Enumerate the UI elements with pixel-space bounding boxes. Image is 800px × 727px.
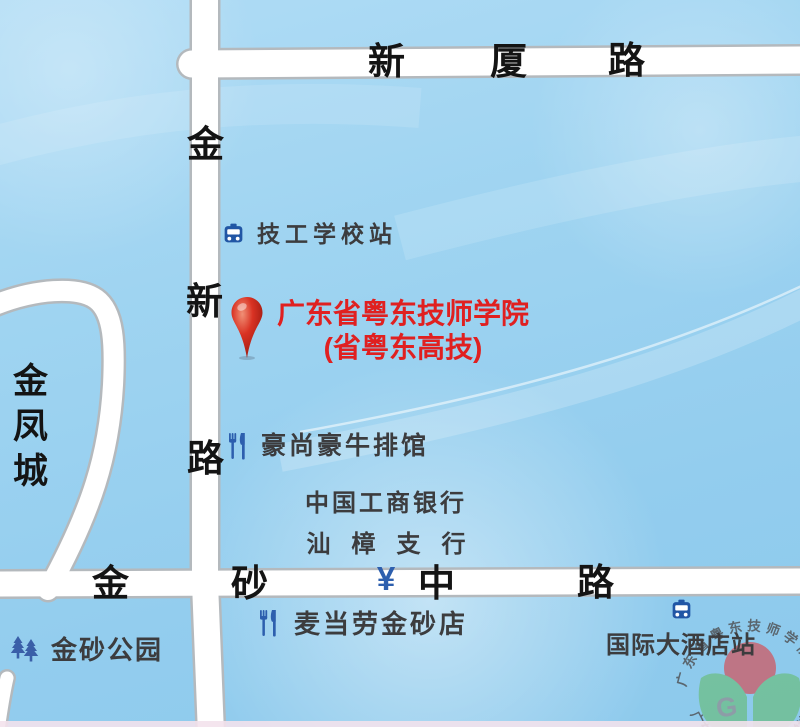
poi-mcdonalds: 麦当劳金砂店: [258, 610, 468, 643]
poi-bus-stop-school: 技工学校站: [221, 222, 397, 252]
restaurant-icon: [258, 610, 280, 643]
map-pin-icon: [232, 297, 263, 360]
poi-bus-stop-hotel: 国际大酒店站: [606, 598, 756, 659]
poi-steak-house: 豪尚豪牛排馆: [227, 433, 429, 466]
restaurant-icon: [227, 433, 249, 466]
poi-bank: 中国工商银行 汕樟支行 ¥: [303, 483, 469, 595]
poi-label: 技工学校站: [257, 222, 397, 247]
road-char: 厦: [490, 43, 527, 80]
yuan-icon: ¥: [303, 562, 469, 595]
area-char: 金: [13, 364, 48, 399]
logo-monogram-g: G: [714, 691, 739, 724]
poi-label: 麦当劳金砂店: [294, 610, 468, 639]
road-char: 新: [368, 43, 405, 80]
area-label-jinfengcheng: 金 凤 城: [13, 364, 48, 489]
poi-label: 金砂公园: [51, 636, 163, 665]
image-edge-strip: [0, 721, 800, 727]
poi-park: 金砂公园: [10, 636, 163, 669]
college-name: 广东省粤东技师学院: [272, 297, 534, 331]
bus-icon: [221, 222, 246, 252]
area-char: 凤: [13, 409, 48, 444]
bank-branch: 汕樟支行: [303, 524, 490, 559]
college-alias: (省粤东高技): [272, 331, 534, 365]
area-char: 城: [13, 454, 48, 489]
poi-label: 豪尚豪牛排馆: [261, 433, 429, 461]
road-char: 路: [577, 564, 614, 601]
road-char: 路: [608, 42, 645, 79]
bank-name: 中国工商银行: [303, 483, 469, 518]
bus-icon: [669, 598, 694, 628]
road-char: 路: [187, 440, 224, 477]
poi-label: 国际大酒店站: [606, 633, 756, 659]
road-corner-stub: [0, 678, 7, 727]
road-char: 金: [92, 565, 129, 602]
road-char: 新: [186, 283, 223, 320]
campus-location-map: 广东省粤东技师学院 广东省粤东高级技工学校 G 新 厦 路 金 新: [0, 0, 800, 727]
road-char: 砂: [231, 565, 268, 602]
poi-college: 广东省粤东技师学院 (省粤东高技): [272, 297, 534, 365]
trees-icon: [10, 636, 40, 669]
road-char: 金: [187, 126, 224, 163]
road-jinxin: [205, 0, 211, 727]
